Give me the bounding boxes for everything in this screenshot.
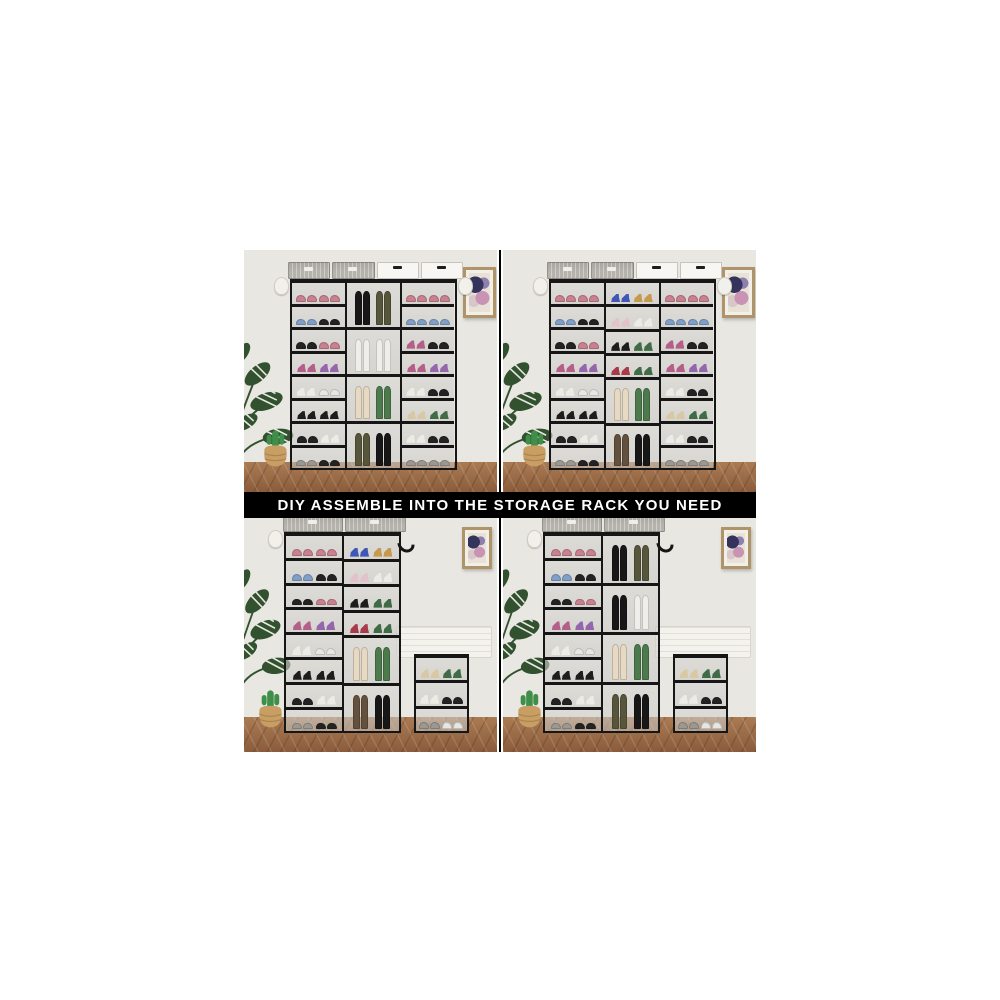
shoe <box>555 460 565 466</box>
shoe <box>611 342 620 350</box>
shoe-pair-sneaker <box>406 295 427 301</box>
shoe <box>303 698 313 705</box>
shoe-pair-sneaker <box>578 342 599 348</box>
shoe <box>644 318 653 326</box>
shoe <box>355 291 362 325</box>
shelf-shoes <box>545 660 600 682</box>
rack-shelf-cell <box>344 686 399 731</box>
shoe <box>687 342 697 348</box>
rack-shelf-cell <box>286 685 341 710</box>
rack-shelf-cell <box>603 536 658 586</box>
shoe <box>376 433 383 467</box>
shoe <box>634 595 641 631</box>
shoe-pair-sneaker <box>292 599 313 606</box>
shoe <box>440 295 450 301</box>
shoe-pair-boot <box>634 595 649 631</box>
shoe <box>316 599 326 606</box>
rack-shelf-cell <box>344 638 399 686</box>
shelf-shoes <box>292 448 345 469</box>
shoe <box>429 295 439 301</box>
shoe <box>614 388 621 420</box>
shoe <box>428 389 438 395</box>
shoe-pair-sneaker <box>687 342 708 348</box>
shoe-pair-boot <box>376 433 391 467</box>
rack-shelf-cell <box>551 424 604 448</box>
shoe-pair-boot <box>612 644 627 680</box>
shoe <box>666 364 675 372</box>
cactus-pot <box>259 427 292 468</box>
shoe-pair-heel <box>373 573 392 582</box>
shoe <box>575 621 584 630</box>
shoe <box>315 648 325 655</box>
shoe <box>665 435 674 443</box>
shoe <box>406 319 416 325</box>
shoe <box>326 621 335 630</box>
shoe <box>375 647 382 681</box>
shelf-shoes <box>286 660 341 682</box>
shelf-shoes <box>551 401 604 422</box>
shelf-shoes <box>286 586 341 608</box>
shoe <box>384 339 391 373</box>
shoe <box>579 411 588 419</box>
shoe <box>586 696 595 705</box>
shoe <box>689 364 698 372</box>
shoe-pair-sneaker <box>297 436 318 442</box>
shoe-pair-sneaker <box>701 722 722 729</box>
shelf-shoes <box>347 330 400 374</box>
scene-bottom-right <box>503 518 756 752</box>
shelf-shoes <box>661 283 714 304</box>
shoe <box>620 644 627 680</box>
rack-shelf-cell <box>606 356 659 380</box>
rack-shelf-cell <box>551 354 604 378</box>
shelf-shoes <box>606 283 659 304</box>
shoe-pair-sneaker <box>296 342 317 348</box>
shoe <box>429 460 439 466</box>
shoe <box>316 574 326 581</box>
shelf-shoes <box>344 638 399 683</box>
shoe <box>578 460 588 466</box>
shoe <box>330 342 340 348</box>
shoe <box>551 599 561 606</box>
rack-shelf-cell <box>545 561 600 586</box>
rack-column <box>286 536 343 731</box>
shoe-pair-boot <box>612 595 627 631</box>
shoe <box>643 434 650 466</box>
shelf-shoes <box>551 307 604 328</box>
shoe <box>590 435 599 443</box>
shoe <box>644 367 653 375</box>
shoe <box>689 411 698 419</box>
shoe <box>296 460 306 466</box>
shoe <box>687 389 697 395</box>
rack-shelf-cell <box>344 536 399 562</box>
shelf-shoes <box>416 683 468 706</box>
shoe-pair-sneaker <box>292 574 313 581</box>
shoe <box>307 460 317 466</box>
shelf-shoes <box>344 686 399 731</box>
shelf-shoes <box>344 613 399 636</box>
shoe <box>675 340 684 348</box>
shoe <box>442 722 452 729</box>
shelf-shoes <box>551 330 604 351</box>
storage-basket-gray <box>604 518 664 532</box>
shoe <box>562 671 571 680</box>
shoe <box>429 319 439 325</box>
rack-shelf-cell <box>292 448 345 469</box>
rack-shelf-cell <box>551 377 604 401</box>
rack-column <box>292 283 347 468</box>
rack-shelf-cell <box>292 283 345 307</box>
rack-shelf-cell <box>545 660 600 685</box>
shoe-pair-heel <box>373 624 392 633</box>
rack-column <box>402 283 455 468</box>
shelf-shoes <box>606 356 659 377</box>
shoe <box>551 698 561 705</box>
shelf-shoes <box>344 587 399 610</box>
shoe <box>621 367 630 375</box>
shoe <box>612 694 619 730</box>
shelf-shoes <box>603 586 658 633</box>
rack-shelf-cell <box>402 283 455 307</box>
rack-shelf-cell <box>344 587 399 613</box>
shoe <box>575 599 585 606</box>
shelf-shoes <box>603 536 658 583</box>
shelf-shoes <box>606 380 659 423</box>
shoe <box>589 389 599 395</box>
shoe <box>453 697 463 704</box>
abstract-artwork <box>469 273 490 312</box>
shoe <box>406 388 415 396</box>
shelf-shoes <box>661 401 714 422</box>
shelf-shoes <box>551 354 604 375</box>
shoe-pair-heel <box>576 696 595 705</box>
shelf-shoes <box>661 448 714 469</box>
shoe <box>642 595 649 631</box>
abstract-artwork <box>728 273 749 312</box>
shoe <box>327 696 336 705</box>
shoe-pair-sneaker <box>678 722 699 729</box>
shoe-pair-heel <box>350 624 369 633</box>
shoe <box>327 549 337 556</box>
rack-column <box>545 536 602 731</box>
rack-shelf-cell <box>661 283 714 307</box>
shoe <box>297 388 306 396</box>
shelf-shoes <box>551 424 604 445</box>
shoe <box>555 295 565 301</box>
shoe <box>406 460 416 466</box>
shoe <box>307 295 317 301</box>
shoe <box>363 339 370 373</box>
shelf-shoes <box>292 354 345 375</box>
rack-frame <box>414 654 470 734</box>
shoe <box>634 644 641 680</box>
shoe <box>303 574 313 581</box>
shelf-shoes <box>416 658 468 681</box>
shelf-shoes <box>545 685 600 707</box>
shelf-shoes <box>402 401 455 422</box>
shoe <box>675 435 684 443</box>
shoe <box>308 436 318 442</box>
shoe <box>442 697 452 704</box>
shoe-pair-heel <box>443 669 462 678</box>
shoe <box>292 723 302 730</box>
shoe-pair-heel <box>680 669 699 678</box>
shelf-shoes <box>347 377 400 421</box>
rack-shelf-cell <box>347 424 400 468</box>
shoe <box>562 698 572 705</box>
shelf-shoes <box>545 610 600 632</box>
rack-shelf-cell <box>545 685 600 710</box>
shoe <box>326 648 336 655</box>
shoe <box>363 433 370 467</box>
shoe <box>676 364 685 372</box>
rack-frame <box>543 532 659 733</box>
shelf-shoes <box>606 332 659 353</box>
shoe <box>350 624 359 633</box>
shelf-shoes <box>292 283 345 304</box>
picture-frame <box>462 527 492 569</box>
shoe <box>416 388 425 396</box>
shoe <box>330 460 340 466</box>
shoe-pair-boot <box>614 434 629 466</box>
shoe <box>612 644 619 680</box>
shelf-shoes <box>545 710 600 732</box>
page: { "image": { "description": "e-commerce … <box>0 0 1000 1000</box>
storage-basket-white <box>636 262 678 279</box>
shoe <box>586 574 596 581</box>
storage-basket-gray <box>332 262 374 279</box>
shoe <box>586 549 596 556</box>
shoe-pair-sneaker <box>687 436 708 442</box>
shoe-pair-sneaker <box>665 460 686 466</box>
shelf-shoes <box>402 354 455 375</box>
shelf-shoes <box>545 561 600 583</box>
shoe-pair-heel <box>552 671 571 680</box>
shoe-pair-sneaker <box>442 722 463 729</box>
shoe <box>319 342 329 348</box>
shoe-pair-heel <box>556 388 575 396</box>
shelf-shoes <box>402 307 455 328</box>
shoe-pair-sneaker <box>575 599 596 606</box>
shoe-pair-heel <box>316 621 335 630</box>
shoe-pair-heel <box>702 669 721 678</box>
shelf-shoes <box>402 424 455 445</box>
shoe-pair-sneaker <box>429 295 450 301</box>
shoe-pair-boot <box>612 694 627 730</box>
rack-shelf-cell <box>292 401 345 425</box>
rack-shelf-cell <box>402 377 455 401</box>
shoe-pair-boot <box>634 644 649 680</box>
shoe <box>407 364 416 372</box>
shoe <box>556 364 565 372</box>
rack-shelf-cell <box>292 307 345 331</box>
shoe <box>562 723 572 730</box>
shoe-pair-heel <box>321 435 340 443</box>
shoe <box>406 340 415 348</box>
shoe <box>576 696 585 705</box>
shoe-pair-sneaker <box>575 723 596 730</box>
shoe <box>698 342 708 348</box>
shoe <box>712 722 722 729</box>
shoe-pair-heel <box>297 364 316 372</box>
shoe <box>316 621 325 630</box>
shoe-pair-heel <box>634 367 653 375</box>
shelf-shoes <box>344 536 399 559</box>
shoe-pair-boot <box>353 647 368 681</box>
shoe-pair-sneaker <box>688 319 709 325</box>
shoe <box>634 694 641 730</box>
shoe <box>620 545 627 581</box>
shoe <box>350 599 359 608</box>
shelf-shoes <box>344 562 399 585</box>
shoe-pair-heel <box>575 671 594 680</box>
shelf-shoes <box>416 709 468 732</box>
shoe <box>699 295 709 301</box>
shoe <box>585 648 595 655</box>
shoe-pair-heel <box>634 342 653 350</box>
banner-text: DIY ASSEMBLE INTO THE STORAGE RACK YOU N… <box>278 497 723 514</box>
shoe-pair-boot <box>612 545 627 581</box>
shoe <box>430 364 439 372</box>
shoe <box>439 342 449 348</box>
shoe-pair-sneaker <box>688 460 709 466</box>
shoe <box>327 574 337 581</box>
shoe-pair-heel <box>407 411 426 419</box>
shoe-pair-sneaker <box>687 389 708 395</box>
shoe-pair-heel <box>575 621 594 630</box>
shoe-pair-heel <box>689 411 708 419</box>
shoe <box>578 295 588 301</box>
shoe-pair-boot <box>355 339 370 373</box>
rack-shelf-cell <box>661 377 714 401</box>
shoe-pair-sneaker <box>406 319 427 325</box>
shoe-pair-heel <box>421 669 440 678</box>
rack-shelf-cell <box>675 683 727 709</box>
shoe <box>430 695 439 704</box>
shoe-pair-heel <box>634 318 653 326</box>
cactus-pot <box>513 687 546 729</box>
storage-baskets <box>283 518 405 532</box>
shoe-pair-sneaker <box>555 460 576 466</box>
shoe <box>699 319 709 325</box>
shoe <box>622 388 629 420</box>
shoe <box>307 411 316 419</box>
shoe <box>586 599 596 606</box>
abstract-artwork <box>468 533 486 563</box>
shoe-pair-boot <box>635 388 650 420</box>
storage-baskets <box>542 518 664 532</box>
shoe-pair-sneaker <box>575 574 596 581</box>
shoe-pair-heel <box>665 388 684 396</box>
shoe-pair-sneaker <box>429 319 450 325</box>
rack-shelf-cell <box>606 332 659 356</box>
shoe-pair-sneaker <box>429 460 450 466</box>
shoe <box>689 695 698 704</box>
storage-basket-gray <box>345 518 405 532</box>
rack-shelf-cell <box>292 377 345 401</box>
hanging-hat <box>717 277 732 295</box>
shoe <box>634 294 643 302</box>
shoe-pair-heel <box>316 671 335 680</box>
storage-basket-gray <box>288 262 330 279</box>
shoe <box>419 722 429 729</box>
shelf-shoes <box>402 330 455 351</box>
shoe-pair-heel <box>406 340 425 348</box>
hanging-hat <box>458 277 473 295</box>
shoe <box>566 342 576 348</box>
shoe-pair-sneaker <box>296 319 317 325</box>
shoe-pair-heel <box>420 695 439 704</box>
shoe <box>373 599 382 608</box>
shoe-pair-boot <box>355 291 370 325</box>
shoe-pair-heel <box>556 364 575 372</box>
shoe-pair-boot <box>355 386 370 420</box>
rack-column <box>551 283 606 468</box>
shoe <box>439 436 449 442</box>
shoe <box>589 342 599 348</box>
shoe <box>574 648 584 655</box>
rack-shelf-cell <box>545 586 600 611</box>
rack-shelf-cell <box>416 658 468 684</box>
shoe <box>675 388 684 396</box>
shoe-pair-sneaker <box>428 436 449 442</box>
hanging-hat <box>274 277 289 295</box>
shoe <box>443 669 452 678</box>
shelf-shoes <box>286 685 341 707</box>
shoe-pair-sneaker <box>292 723 313 730</box>
shoe <box>327 723 337 730</box>
rack-shelf-cell <box>347 330 400 377</box>
shoe <box>373 548 382 557</box>
shoe <box>551 646 560 655</box>
shoe <box>712 669 721 678</box>
shoe <box>642 694 649 730</box>
shoe-pair-heel <box>551 646 570 655</box>
shoe <box>292 549 302 556</box>
rack-shelf-cell <box>286 660 341 685</box>
shoe-pair-heel <box>665 340 684 348</box>
shoe <box>373 573 382 582</box>
shoe <box>611 318 620 326</box>
shoe <box>383 647 390 681</box>
storage-basket-white <box>377 262 419 279</box>
shoe <box>316 549 326 556</box>
rack-column <box>675 658 727 732</box>
shoe-pair-sneaker <box>316 574 337 581</box>
shoe <box>575 574 585 581</box>
shoe <box>702 669 711 678</box>
shoe <box>556 388 565 396</box>
shoe <box>439 389 449 395</box>
rack-shelf-cell <box>286 586 341 611</box>
rack-shelf-cell <box>402 330 455 354</box>
rack-shelf-cell <box>286 710 341 732</box>
rack-shelf-cell <box>661 354 714 378</box>
shoe-pair-boot <box>375 647 390 681</box>
shoe-pair-sneaker <box>319 342 340 348</box>
shoe <box>420 695 429 704</box>
shelf-shoes <box>402 283 455 304</box>
rack-shelf-cell <box>551 283 604 307</box>
shoe <box>688 460 698 466</box>
shoe <box>316 671 325 680</box>
shoe-pair-heel <box>350 599 369 608</box>
rack-column <box>661 283 714 468</box>
shoe-pair-heel <box>406 435 425 443</box>
shelf-shoes <box>286 536 341 558</box>
shoe <box>417 319 427 325</box>
